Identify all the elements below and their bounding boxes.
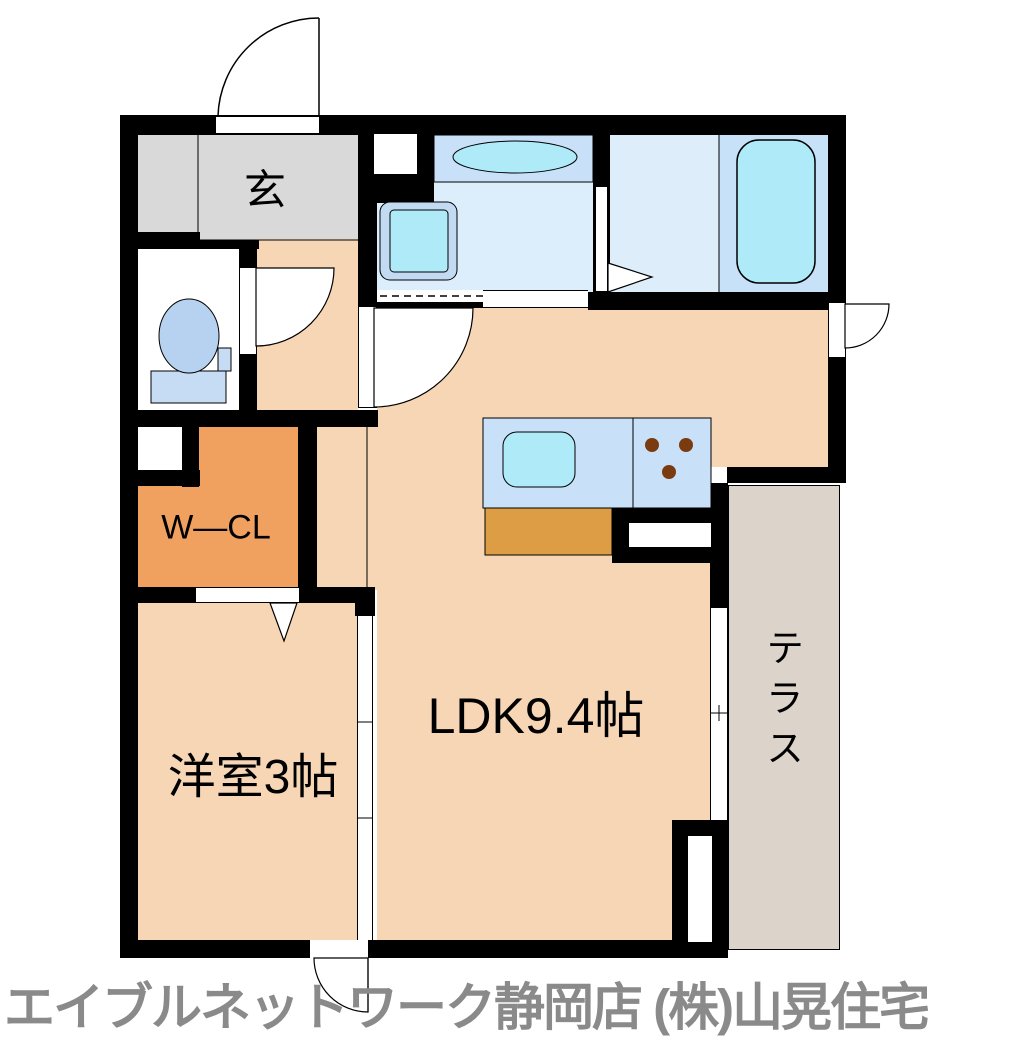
toilet-door-leaf xyxy=(239,267,257,355)
ldk-room-alcove xyxy=(710,306,830,467)
entrance-label: 玄 xyxy=(244,157,286,218)
side-exterior-door-opening xyxy=(829,303,845,357)
entrance-door-threshold xyxy=(215,116,320,134)
pipe-space-niche xyxy=(373,133,418,175)
washroom-sliding-door xyxy=(377,290,483,302)
hall-nook xyxy=(317,420,377,590)
ldk-label: LDK9.4帖 xyxy=(428,676,645,748)
bathroom-door-opening xyxy=(595,186,608,292)
toilet-room xyxy=(138,249,239,410)
wall xyxy=(138,470,200,486)
wall xyxy=(120,410,378,427)
washroom-upper xyxy=(434,135,593,197)
wcl-door-opening xyxy=(196,588,299,602)
kitchen-hatch-opening xyxy=(629,523,711,547)
western-room-label: 洋室3帖 xyxy=(168,737,339,807)
wall xyxy=(588,292,830,310)
hallway xyxy=(255,239,358,410)
walk-in-closet xyxy=(199,427,298,587)
pass-opening xyxy=(483,290,588,308)
wall xyxy=(198,240,259,249)
corner-window xyxy=(688,836,712,942)
terrace-label: テラス xyxy=(754,628,809,778)
wall xyxy=(355,603,375,616)
bottom-door-opening xyxy=(310,940,368,958)
floor-plan: 玄 W—CL 洋室3帖 LDK9.4帖 テラス エイブルネットワーク静岡店 (株… xyxy=(0,0,1020,1020)
wcl-label: W—CL xyxy=(161,509,271,548)
wall xyxy=(828,115,846,483)
ldk-door-leaf xyxy=(358,306,377,408)
bathroom-tub-room xyxy=(719,135,828,292)
agency-footer-text: エイブルネットワーク静岡店 (株)山晃住宅 xyxy=(4,966,928,1040)
closet-niche xyxy=(138,427,182,470)
washroom xyxy=(377,195,593,292)
bathroom-washplace xyxy=(610,135,719,292)
side-door-swing-icon xyxy=(845,304,889,348)
partition-sliding-door xyxy=(357,616,373,940)
wall xyxy=(120,940,728,958)
terrace-sliding-window xyxy=(710,608,728,820)
wall xyxy=(727,467,846,483)
entrance-door-icon xyxy=(218,18,319,116)
wall xyxy=(120,232,200,249)
wall xyxy=(298,427,317,587)
